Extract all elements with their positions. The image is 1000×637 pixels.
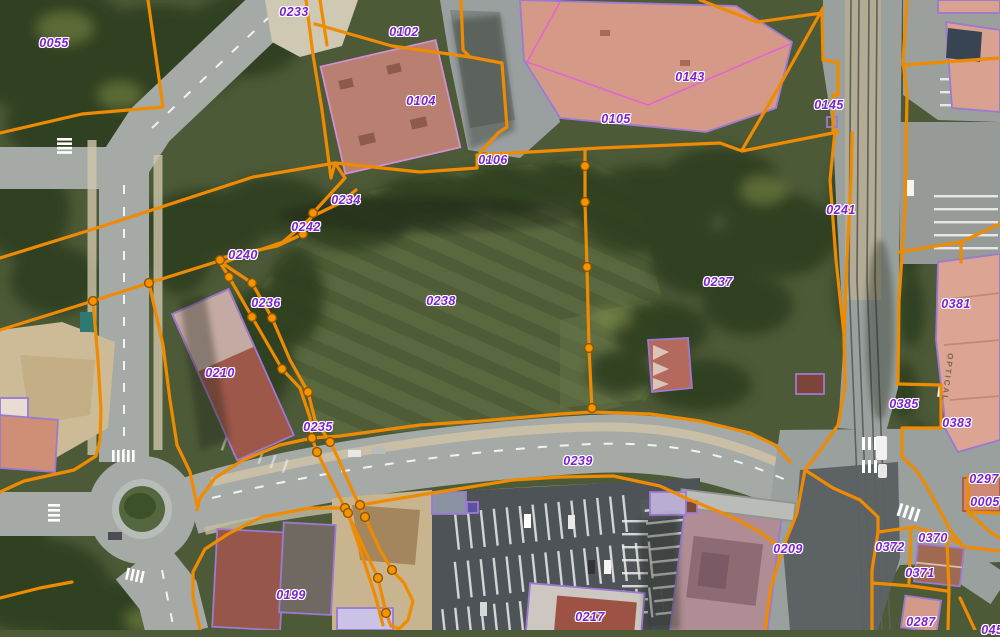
building-gray-small [432,492,466,514]
parcel-label-0199[interactable]: 0199 [276,588,305,602]
parcel-label-0217[interactable]: 0217 [575,610,604,624]
parcel-label-0102[interactable]: 0102 [389,25,418,39]
parcel-label-0372[interactable]: 0372 [875,540,904,554]
parcel-label-0209[interactable]: 0209 [773,542,802,556]
parcel-label-0234[interactable]: 0234 [331,193,360,207]
parcel-label-0145[interactable]: 0145 [814,98,843,112]
building-0199 [212,519,335,630]
parcel-label-0238[interactable]: 0238 [426,294,455,308]
parcel-label-0457[interactable]: 0457 [981,623,1000,637]
parcel-label-0371[interactable]: 0371 [905,566,934,580]
parcel-label-0297[interactable]: 0297 [969,472,998,486]
parcel-label-0383[interactable]: 0383 [942,416,971,430]
parcel-label-0381[interactable]: 0381 [941,297,970,311]
parcel-label-0236[interactable]: 0236 [251,296,280,310]
building-dark-shed [796,374,824,394]
parcel-label-0005[interactable]: 0005 [970,495,999,509]
aerial-orthophoto-layer [0,0,1000,630]
parcel-label-0237[interactable]: 0237 [703,275,732,289]
building-violet-small [467,502,478,513]
parcel-label-0240[interactable]: 0240 [228,248,257,262]
parcel-label-0239[interactable]: 0239 [563,454,592,468]
parcel-label-0105[interactable]: 0105 [601,112,630,126]
parcel-label-0242[interactable]: 0242 [291,220,320,234]
parcel-label-0370[interactable]: 0370 [918,531,947,545]
parcel-label-0385[interactable]: 0385 [889,397,918,411]
crosswalk [862,460,877,473]
building-0237-house [648,338,692,392]
parcel-label-0106[interactable]: 0106 [478,153,507,167]
container-teal [80,312,94,332]
parcel-label-0104[interactable]: 0104 [406,94,435,108]
building-0209-mauve [670,505,782,630]
building-left-tan [0,415,58,472]
parcel-label-0055[interactable]: 0055 [39,36,68,50]
parcel-label-0235[interactable]: 0235 [303,420,332,434]
parcel-label-0210[interactable]: 0210 [205,366,234,380]
aerial-map-canvas[interactable]: 0055023301020104014301050145010602340242… [0,0,1000,630]
parcel-label-0241[interactable]: 0241 [826,203,855,217]
parcel-label-0233[interactable]: 0233 [279,5,308,19]
parcel-label-0143[interactable]: 0143 [675,70,704,84]
parcel-label-0287[interactable]: 0287 [906,615,935,629]
